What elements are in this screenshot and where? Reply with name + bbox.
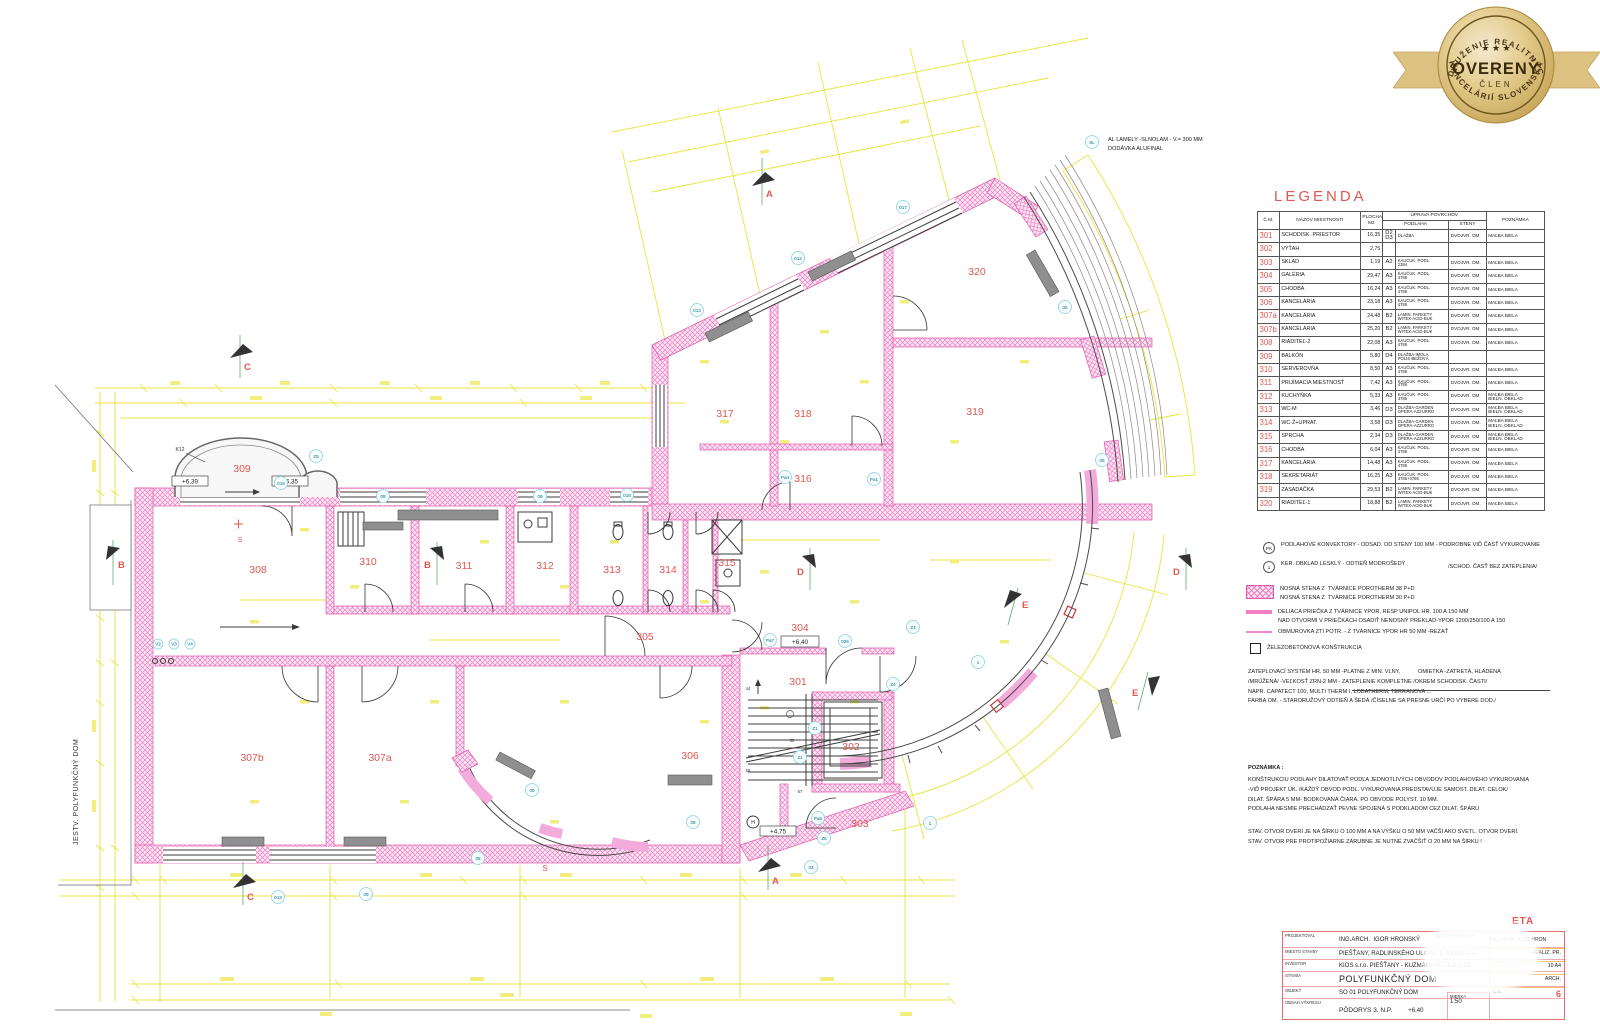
legend-cell-code: D3 xyxy=(1382,404,1396,417)
room-label: 302 xyxy=(842,741,860,753)
legend-cell-note: MAĽBA BIELA xyxy=(1486,283,1544,296)
legend-cell-area: 16,24 xyxy=(1360,283,1382,296)
svg-text:018: 018 xyxy=(623,493,631,498)
legend-row: 320RIADITEĽ-118,88B2LAMIN. PARKETY WITEX… xyxy=(1258,497,1545,510)
stav-line2: STAV. OTVOR PRE PROTIPOŽIARNE ZÁRUBNE JE… xyxy=(1248,839,1482,845)
room-label: 319 xyxy=(966,406,984,418)
legend-row: 318SEKRETARIÁT16,25A3KAUČUK. PODL. 4786+… xyxy=(1258,471,1545,484)
projektoval-role: ING.ARCH. xyxy=(1339,937,1370,943)
legend-cell-code: B2 xyxy=(1382,323,1396,336)
legend-cell-cm: 317 xyxy=(1258,457,1280,470)
svg-text:019: 019 xyxy=(277,481,285,486)
legend-cell-area: 14,48 xyxy=(1360,457,1382,470)
legend-row: 306KANCELÁRIA23,18A3KAUČUK. PODL. 4786DV… xyxy=(1258,296,1545,309)
svg-text:05: 05 xyxy=(1062,305,1068,310)
legend-row: 319ZASADAČKA29,53B2LAMIN. PARKETY WITEX-… xyxy=(1258,484,1545,497)
legend-cell-cm: 303 xyxy=(1258,256,1280,269)
balcony xyxy=(175,438,337,497)
legend-cell-floor: LAMIN. PARKETY WITEX-ACID-BUK xyxy=(1396,484,1449,497)
room-label: 304 xyxy=(791,622,809,634)
legend-cell-name: CHODBA xyxy=(1279,444,1360,457)
legend-cell-area: 29,47 xyxy=(1360,270,1382,283)
legend-cell-name: KUCHYŇKA xyxy=(1279,390,1360,403)
legend-cell-area: 2,34 xyxy=(1360,430,1382,443)
stav-note: STAV. OTVOR DVERÍ JE NA ŠÍRKU O 100 MM A… xyxy=(1248,828,1519,848)
legend-cell-floor: DLAŽBA-IMOLA POLIS-BEŽOVÁ xyxy=(1396,350,1449,363)
legend-cell-floor: LAMIN. PARKETY WITEX-ACID-BUK xyxy=(1396,310,1449,323)
legend-cell-floor: DLAŽBA-GARDEN OPERA-AZZURRO xyxy=(1396,404,1449,417)
legend-cell-walls: DVOJVR. OM. xyxy=(1449,444,1486,457)
legend-cell-code: B2 xyxy=(1382,484,1396,497)
poznamka-text: KONŠTRUKCIU PODLAHY DILATOVAŤ PODĽA JEDN… xyxy=(1248,776,1529,815)
s-label: S xyxy=(542,864,547,873)
badge-sub-text: ČLEN xyxy=(1479,80,1512,89)
legend-cell-name: CHODBA xyxy=(1279,283,1360,296)
room-label: 320 xyxy=(968,266,986,278)
legend-cell-code: A3 xyxy=(1382,471,1396,484)
partition-text-1: DELIACA PRIEČKA Z TVÁRNICE YPOR, RESP UN… xyxy=(1278,609,1468,615)
svg-text:E: E xyxy=(1022,600,1028,611)
room-label: 315 xyxy=(718,557,736,569)
legend-cell-note xyxy=(1486,350,1544,363)
legend-cell-note: MAĽBA BIELA xyxy=(1486,457,1544,470)
legend-row: 311PRIJÍMACIA MIESTNOSŤ7,42A3KAUČUK. POD… xyxy=(1258,377,1545,390)
legend-cell-cm: 307b xyxy=(1258,323,1280,336)
legend-cell-note: MAĽBA BIELA xyxy=(1486,337,1544,350)
legend-cell-floor: KAUČUK. PODL. 2394 xyxy=(1396,256,1449,269)
legend-cell-area: 18,88 xyxy=(1360,497,1382,510)
legend-cell-code: D4 xyxy=(1382,350,1396,363)
legend-cell-area: 1,19 xyxy=(1360,256,1382,269)
svg-text:Z1: Z1 xyxy=(812,726,818,731)
legend-header-cm: Č.M. xyxy=(1258,212,1280,230)
wall-text-1a: NOSNÁ STENA Z xyxy=(1280,585,1328,594)
legend-cell-area: 3,58 xyxy=(1360,417,1382,430)
objekt-label: OBJEKT xyxy=(1283,987,1339,994)
svg-text:V2: V2 xyxy=(155,642,161,647)
svg-text:09: 09 xyxy=(363,892,369,897)
legend-cell-cm: 313 xyxy=(1258,404,1280,417)
legend-cell-note: MAĽBA BIELA xyxy=(1486,471,1544,484)
legend-cell-note: MAĽBA BIELA xyxy=(1486,256,1544,269)
legend-cell-note: MAĽBA BIELA BIELN. OBKLAD xyxy=(1486,430,1544,443)
legend-row: 309BALKÓN5,80D4DLAŽBA-IMOLA POLIS-BEŽOVÁ xyxy=(1258,350,1545,363)
svg-text:03: 03 xyxy=(808,865,814,870)
svg-text:Pa7: Pa7 xyxy=(766,638,775,643)
s-label: S xyxy=(238,537,243,544)
legend-row: 307bKANCELÁRIA25,20B2LAMIN. PARKETY WITE… xyxy=(1258,323,1545,336)
poznamka-line2: -VIĎ PROJEKT ÚK. /KAŽDÝ OBVOD PODL. VYKU… xyxy=(1248,787,1508,793)
svg-text:08: 08 xyxy=(690,820,696,825)
legend-cell-code: A3 xyxy=(1382,457,1396,470)
legend-cell-floor: KAUČUK. PODL. 4786 xyxy=(1396,363,1449,376)
svg-text:B: B xyxy=(424,560,431,571)
legend-cell-walls: DVOJVR. OM. xyxy=(1449,363,1486,376)
legend-cell-area: 23,18 xyxy=(1360,296,1382,309)
legend-row: 314WC-Ž+UPRAT.3,58D3DLAŽBA-GARDEN OPERA-… xyxy=(1258,417,1545,430)
legend-cell-floor: KAUČUK. PODL. 4786 xyxy=(1396,444,1449,457)
insulation-right-note: OMIETKA -ZATRETÁ, HLADENÁ xyxy=(1418,668,1501,678)
svg-text:57: 57 xyxy=(798,789,803,794)
legend-cell-area: 29,53 xyxy=(1360,484,1382,497)
svg-text:026: 026 xyxy=(841,639,849,644)
legend-header-name: NÁZOV MIESTNOSTI xyxy=(1279,212,1360,230)
divider-line xyxy=(1352,690,1550,691)
legend-cell-name: RIADITEĽ-1 xyxy=(1279,497,1360,510)
legend-cell-cm: 310 xyxy=(1258,363,1280,376)
obsah-level: +6,40 xyxy=(1408,1008,1423,1014)
legend-cell-note: MAĽBA BIELA BIELN. OBKLAD xyxy=(1486,390,1544,403)
legend-cell-cm: 304 xyxy=(1258,270,1280,283)
sl-note-line1: AL LAMELY -SLNOLAM - V.= 300 MM xyxy=(1108,137,1203,143)
svg-text:09: 09 xyxy=(537,494,543,499)
legend-cell-name: VÝŤAH xyxy=(1279,243,1360,256)
floor-plan: 301 302 303 304 305 306 307a 307b 308 30… xyxy=(0,0,1600,1034)
legend-cell-walls: DVOJVR. OM. xyxy=(1449,497,1486,510)
investor-label: INVESTOR xyxy=(1283,960,1339,967)
svg-text:+4,75: +4,75 xyxy=(770,829,786,836)
legend-cell-cm: 319 xyxy=(1258,484,1280,497)
legend-cell-walls: DVOJVR. OM. xyxy=(1449,457,1486,470)
legend-cell-note: MAĽBA BIELA xyxy=(1486,296,1544,309)
svg-text:013: 013 xyxy=(274,895,282,900)
legend-cell-walls: DVOJVR. OM. xyxy=(1449,310,1486,323)
svg-text:58: 58 xyxy=(746,768,751,773)
legend-cell-floor: KAUČUK. PODL. 4786 xyxy=(1396,270,1449,283)
legend-cell-name: GALÉRIA xyxy=(1279,270,1360,283)
legend-cell-floor: KAUČUK. PODL. 4786 xyxy=(1396,457,1449,470)
insulation-line1: ZATEPLOVACÍ SYSTÉM HR. 50 MM -PLATNE Z M… xyxy=(1248,669,1400,675)
legend-cell-cm: 301 xyxy=(1258,230,1280,243)
note-tile-extra: /SCHOD. ČASŤ BEZ ZATEPLENIA/ xyxy=(1448,564,1537,570)
legend-cell-code: B2 xyxy=(1382,497,1396,510)
legend-cell-walls: DVOJVR. OM. xyxy=(1449,377,1486,390)
legend-cell-code: A3 xyxy=(1382,390,1396,403)
svg-text:H: H xyxy=(751,820,755,826)
poznamka-title: POZNÁMKA : xyxy=(1248,764,1284,774)
legend-row: 313WC-M3,46D3DLAŽBA-GARDEN OPERA-AZZURRO… xyxy=(1258,404,1545,417)
legend-cell-code: A3 xyxy=(1382,283,1396,296)
legend-cell-floor: KAUČUK. PODL. 4786+4785 xyxy=(1396,471,1449,484)
svg-text:Pa4: Pa4 xyxy=(781,475,790,480)
wall-text-1b: TVÁRNICE POROTHERM 38 P+D xyxy=(1328,586,1415,592)
room-label: 314 xyxy=(659,564,677,576)
legend-cell-walls: DVOJVR. OM. xyxy=(1449,484,1486,497)
legend-cell-name: ZASADAČKA xyxy=(1279,484,1360,497)
legend-cell-code xyxy=(1382,243,1396,256)
legend-cell-cm: 312 xyxy=(1258,390,1280,403)
room-label: 307b xyxy=(240,752,264,764)
wall-hatch-swatch xyxy=(1246,585,1274,599)
legend-cell-area: 25,20 xyxy=(1360,323,1382,336)
legend-cell-name: SEKRETARIÁT xyxy=(1279,471,1360,484)
wall-text-2a: NOSNÁ STENA Z xyxy=(1280,594,1328,603)
legend-cell-name: WC-Ž+UPRAT. xyxy=(1279,417,1360,430)
concrete-text: ŽELEZOBETÓNOVÁ KONŠTRUKCIA xyxy=(1267,645,1362,651)
legend-cell-name: RIADITEĽ-2 xyxy=(1279,337,1360,350)
legend-cell-name: KANCELÁRIA xyxy=(1279,296,1360,309)
legend-cell-note: MAĽBA BIELA xyxy=(1486,444,1544,457)
cv-value: 6 xyxy=(1556,989,1561,999)
legend-cell-cm: 306 xyxy=(1258,296,1280,309)
legend-cell-note: MAĽBA BIELA xyxy=(1486,270,1544,283)
one-symbol: 1 xyxy=(1263,561,1275,573)
legend-cell-floor: KAUČUK. PODL. 4786 xyxy=(1396,283,1449,296)
legend-cell-walls: DVOJVR. OM. xyxy=(1449,296,1486,309)
svg-text:A: A xyxy=(766,189,773,200)
svg-text:V4: V4 xyxy=(187,642,193,647)
legend-cell-name: KANCELÁRIA xyxy=(1279,323,1360,336)
room-label: 312 xyxy=(536,560,554,572)
legend-row: 307aKANCELÁRIA24,48B2LAMIN. PARKETY WITE… xyxy=(1258,310,1545,323)
legend-cell-code: A3 xyxy=(1382,444,1396,457)
legend-cell-walls: DVOJVR. OM. xyxy=(1449,430,1486,443)
legend-cell-cm: 315 xyxy=(1258,430,1280,443)
miesto-label: MIESTO STAVBY xyxy=(1283,948,1339,955)
legend-cell-code: A3 xyxy=(1382,363,1396,376)
svg-text:013: 013 xyxy=(693,308,701,313)
legend-row: 317KANCELÁRIA14,48A3KAUČUK. PODL. 4786DV… xyxy=(1258,457,1545,470)
legend-header-note: POZNÁMKA xyxy=(1486,212,1544,230)
legend-cell-name: SKLAD xyxy=(1279,256,1360,269)
svg-text:Pa5: Pa5 xyxy=(814,816,823,821)
legend-cell-note: MAĽBA BIELA xyxy=(1486,497,1544,510)
legend-cell-walls xyxy=(1449,243,1486,256)
legend-cell-name: SPRCHA xyxy=(1279,430,1360,443)
legend-cell-area: 16,35 xyxy=(1360,230,1382,243)
room-label: 303 xyxy=(851,818,869,830)
svg-text:21: 21 xyxy=(797,755,803,760)
legend-cell-walls: DVOJVR. OM. xyxy=(1449,323,1486,336)
legend-row: 302VÝŤAH2,75 xyxy=(1258,243,1545,256)
poznamka-line1: KONŠTRUKCIU PODLAHY DILATOVAŤ PODĽA JEDN… xyxy=(1248,777,1529,783)
pk-symbol: PK xyxy=(1263,542,1275,554)
legend-cell-walls: DVOJVR. OM. xyxy=(1449,270,1486,283)
svg-text:B: B xyxy=(118,560,125,571)
legend-cell-floor: LAMIN. PARKETY WITEX-ACID-BUK xyxy=(1396,497,1449,510)
room-label: 311 xyxy=(456,560,473,572)
legend-row: 315SPRCHA2,34D3DLAŽBA-GARDEN OPERA-AZZUR… xyxy=(1258,430,1545,443)
note-pk: PK PODLAHOVÉ KONVEKTORY - ODSAD. OD STEN… xyxy=(1263,542,1540,554)
legend-cell-name: SERVEROVŇA xyxy=(1279,363,1360,376)
obmurovka-line-swatch xyxy=(1246,631,1272,633)
legend-cell-name: BALKÓN xyxy=(1279,350,1360,363)
insulation-line4: FARBA OM. - STARORUŽOVÝ ODTIEŇ A ŠEDÁ /Č… xyxy=(1248,698,1496,704)
legend-cell-walls: DVOJVR. OM. xyxy=(1449,256,1486,269)
legend-cell-cm: 308 xyxy=(1258,337,1280,350)
stav-line1: STAV. OTVOR DVERÍ JE NA ŠÍRKU O 100 MM A… xyxy=(1248,829,1519,835)
legend-cell-code: D3 xyxy=(1382,430,1396,443)
legend-row: 312KUCHYŇKA5,33A3KAUČUK. PODL. 4785DVOJV… xyxy=(1258,390,1545,403)
svg-text:1: 1 xyxy=(977,660,980,665)
legend-cell-code: A2 xyxy=(1382,256,1396,269)
legend-header-floor: PODLAHA xyxy=(1382,221,1449,230)
projektoval-name: IGOR HRONSKÝ xyxy=(1373,937,1420,943)
legend-cell-cm: 307a xyxy=(1258,310,1280,323)
legend-cell-walls: DVOJVR. OM. xyxy=(1449,390,1486,403)
svg-text:+6,39: +6,39 xyxy=(182,479,198,486)
legend-cell-note xyxy=(1486,243,1544,256)
scale-cell: MIERKA 1:50 xyxy=(1447,992,1490,1019)
legend-cell-cm: 305 xyxy=(1258,283,1280,296)
badge-stars: ★ ★ ★ xyxy=(1481,43,1510,53)
legend-cell-cm: 302 xyxy=(1258,243,1280,256)
svg-text:012: 012 xyxy=(794,256,802,261)
legend-cell-floor: DLAŽBA-GARDEN OPERA-AZZURRO xyxy=(1396,430,1449,443)
legend-cell-note: MAĽBA BIELA xyxy=(1486,377,1544,390)
note-obmurovka: OBMUROVKA ZTI POTR. - Z TVÁRNICE YPOR HR… xyxy=(1246,629,1448,635)
legend-cell-floor: KAUČUK. PODL. 4786 xyxy=(1396,377,1449,390)
partition-line-swatch xyxy=(1246,610,1272,614)
sl-note-line2: DODÁVKA ALUFINAL xyxy=(1108,145,1163,152)
legend-cell-cm: 320 xyxy=(1258,497,1280,510)
legend-cell-area: 22,08 xyxy=(1360,337,1382,350)
svg-text:Pa1: Pa1 xyxy=(870,477,879,482)
room-label: 306 xyxy=(681,750,699,762)
legend-cell-area: 7,42 xyxy=(1360,377,1382,390)
legend-cell-cm: 318 xyxy=(1258,471,1280,484)
legend-cell-note: MAĽBA BIELA xyxy=(1486,363,1544,376)
svg-text:Z6: Z6 xyxy=(821,836,827,841)
legend-cell-area: 16,25 xyxy=(1360,471,1382,484)
svg-text:50: 50 xyxy=(790,738,795,743)
svg-text:Z4: Z4 xyxy=(890,682,896,687)
legend-cell-name: WC-M xyxy=(1279,404,1360,417)
svg-text:1: 1 xyxy=(929,821,932,826)
partition-text-2: NAD OTVORMI V PRIEČKACH OSADIŤ NENOSNÝ P… xyxy=(1278,618,1505,624)
legend-cell-walls xyxy=(1449,350,1486,363)
legend-cell-walls: DVOJVR. OM. xyxy=(1449,283,1486,296)
legend-cell-area: 5,33 xyxy=(1360,390,1382,403)
legend-row: 310SERVEROVŇA8,50A3KAUČUK. PODL. 4786DVO… xyxy=(1258,363,1545,376)
objekt-value: SO 01 POLYFUNKČNÝ DOM xyxy=(1339,990,1418,996)
svg-text:A: A xyxy=(772,876,779,887)
legend-title: LEGENDA xyxy=(1274,188,1367,205)
legend-cell-floor: KAUČUK. PODL. 4786 xyxy=(1396,337,1449,350)
legend-cell-name: PRIJÍMACIA MIESTNOSŤ xyxy=(1279,377,1360,390)
legend-cell-area: 3,46 xyxy=(1360,404,1382,417)
svg-text:D: D xyxy=(797,567,804,578)
legend-cell-floor: DLAŽBA-GARDEN OPERA-AZZURRO xyxy=(1396,417,1449,430)
legend-row: 308RIADITEĽ-222,08A3KAUČUK. PODL. 4786DV… xyxy=(1258,337,1545,350)
legend-cell-code: A3 xyxy=(1382,377,1396,390)
svg-text:09: 09 xyxy=(529,788,535,793)
svg-text:+6,40: +6,40 xyxy=(792,639,808,646)
legend-cell-code: B2 xyxy=(1382,310,1396,323)
legend-cell-code: A3 xyxy=(1382,337,1396,350)
stavba-value: POLYFUNKČNÝ DOM xyxy=(1339,974,1437,984)
room-label: 309 xyxy=(233,463,251,475)
room-label: 305 xyxy=(636,631,654,643)
legend-cell-note: MAĽBA BIELA xyxy=(1486,230,1544,243)
legend-header-area: PLOCHA M2 xyxy=(1360,212,1382,230)
legend-cell-cm: 314 xyxy=(1258,417,1280,430)
note-tile: 1 KER. OBKLAD LESKLÝ - ODTIEŇ MODROŠEDÝ xyxy=(1263,561,1405,573)
svg-text:05: 05 xyxy=(1099,458,1105,463)
legend-cell-floor: DLAŽBA xyxy=(1396,230,1449,243)
note-concrete: ŽELEZOBETÓNOVÁ KONŠTRUKCIA xyxy=(1250,643,1362,654)
legend-cell-floor: KAUČUK. PODL. 4786 xyxy=(1396,296,1449,309)
room-label: 308 xyxy=(249,564,267,576)
reference-markers: 019 09 09 018 013 012 017 05 05 Z5 026 Z… xyxy=(153,201,1109,904)
stavba-label: STAVBA xyxy=(1283,972,1339,979)
legend-cell-cm: 309 xyxy=(1258,350,1280,363)
insulation-line2: /MRÚŽENÁ/ -VEĽKOSŤ ZRN-2 MM - ZATEPLENIE… xyxy=(1248,679,1487,685)
svg-text:SL: SL xyxy=(1089,140,1095,145)
legend-cell-code: A3 xyxy=(1382,270,1396,283)
legend-cell-cm: 311 xyxy=(1258,377,1280,390)
legend-cell-note: MAĽBA BIELA xyxy=(1486,310,1544,323)
legend-cell-code: D2 D3 xyxy=(1382,230,1396,243)
wall-text-2b: TVÁRNICE POROTHERM 30 P+D xyxy=(1328,595,1415,601)
pk-text: PODLAHOVÉ KONVEKTORY - ODSAD. OD STENY 1… xyxy=(1281,542,1540,548)
svg-text:09: 09 xyxy=(380,494,386,499)
mierka-value: 1:50 xyxy=(1450,999,1488,1005)
legend-cell-walls: DVOJVR. OM. xyxy=(1449,417,1486,430)
legend-cell-walls: DVOJVR. OM. xyxy=(1449,404,1486,417)
legend-cell-floor: KAUČUK. PODL. 4785 xyxy=(1396,390,1449,403)
legend-cell-area: 2,75 xyxy=(1360,243,1382,256)
legend-cell-walls: DVOJVR. OM. xyxy=(1449,337,1486,350)
room-label: 316 xyxy=(794,473,812,485)
badge-center-text: OVERENÝ xyxy=(1452,59,1540,78)
room-labels: 301 302 303 304 305 306 307a 307b 308 30… xyxy=(233,266,986,873)
svg-text:08: 08 xyxy=(475,856,481,861)
room-label: 301 xyxy=(789,676,807,688)
certification-badge: ZDRUŽENIE REALITNÝCH KANCELÁRIÍ SLOVENSK… xyxy=(1393,2,1600,130)
legend-cell-walls: DVOJVR. OM. xyxy=(1449,230,1486,243)
svg-text:E: E xyxy=(1132,688,1138,699)
legend-row: 305CHODBA16,24A3KAUČUK. PODL. 4786DVOJVR… xyxy=(1258,283,1545,296)
existing-building-label: JESTV. POLYFUNKČNÝ DOM xyxy=(71,739,80,845)
svg-text:44: 44 xyxy=(746,686,751,691)
svg-text:V3: V3 xyxy=(171,642,177,647)
legend-cell-floor: LAMIN. PARKETY WITEX-ACID-BUK xyxy=(1396,323,1449,336)
svg-text:C: C xyxy=(247,892,254,903)
legend-cell-walls: DVOJVR. OM. xyxy=(1449,471,1486,484)
note-bearing-walls: NOSNÁ STENA ZTVÁRNICE POROTHERM 38 P+D N… xyxy=(1246,585,1415,603)
legend-header-walls: STENY xyxy=(1449,221,1486,230)
legend-cell-cm: 316 xyxy=(1258,444,1280,457)
legend-cell-area: 5,80 xyxy=(1360,350,1382,363)
note-partition: DELIACA PRIEČKA Z TVÁRNICE YPOR, RESP UN… xyxy=(1246,608,1505,626)
legend-table: Č.M. NÁZOV MIESTNOSTI PLOCHA M2 ÚPRAVA P… xyxy=(1257,211,1545,511)
svg-text:D: D xyxy=(1173,567,1180,578)
legend-cell-area: 24,48 xyxy=(1360,310,1382,323)
legend-cell-note: MAĽBA BIELA BIELN. OBKLAD xyxy=(1486,417,1544,430)
legend-cell-floor xyxy=(1396,243,1449,256)
obsah-label: OBSAH VÝKRESU xyxy=(1283,999,1339,1006)
room-label: 307a xyxy=(368,752,392,764)
legend-row: 316CHODBA6,04A3KAUČUK. PODL. 4786DVOJVR.… xyxy=(1258,444,1545,457)
svg-text:C: C xyxy=(244,362,251,373)
legend-cell-note: MAĽBA BIELA xyxy=(1486,323,1544,336)
legend-cell-note: MAĽBA BIELA BIELN. OBKLAD xyxy=(1486,404,1544,417)
legend-cell-code: D3 xyxy=(1382,417,1396,430)
legend-cell-area: 6,04 xyxy=(1360,444,1382,457)
poznamka-line4: PODLAHA NESMIE PRECHÁDZAŤ PEVNE SPOJENÁ … xyxy=(1248,806,1479,812)
obsah-value: PÔDORYS 3. N.P. xyxy=(1339,1007,1392,1014)
svg-text:Z5: Z5 xyxy=(313,454,319,459)
room-label: 318 xyxy=(794,408,812,420)
room-label: 310 xyxy=(359,556,377,568)
legend-cell-name: KANCELÁRIA xyxy=(1279,457,1360,470)
legend-row: 301SCHODISK. PRIESTOR16,35D2 D3DLAŽBADVO… xyxy=(1258,230,1545,243)
svg-text:Z4: Z4 xyxy=(910,625,916,630)
poznamka-line3: DILAT. ŠPÁRA 5 MM- BODKOVANÁ ČIARA, PO O… xyxy=(1248,797,1438,803)
legend-row: 304GALÉRIA29,47A3KAUČUK. PODL. 4786DVOJV… xyxy=(1258,270,1545,283)
legend-cell-code: A3 xyxy=(1382,296,1396,309)
